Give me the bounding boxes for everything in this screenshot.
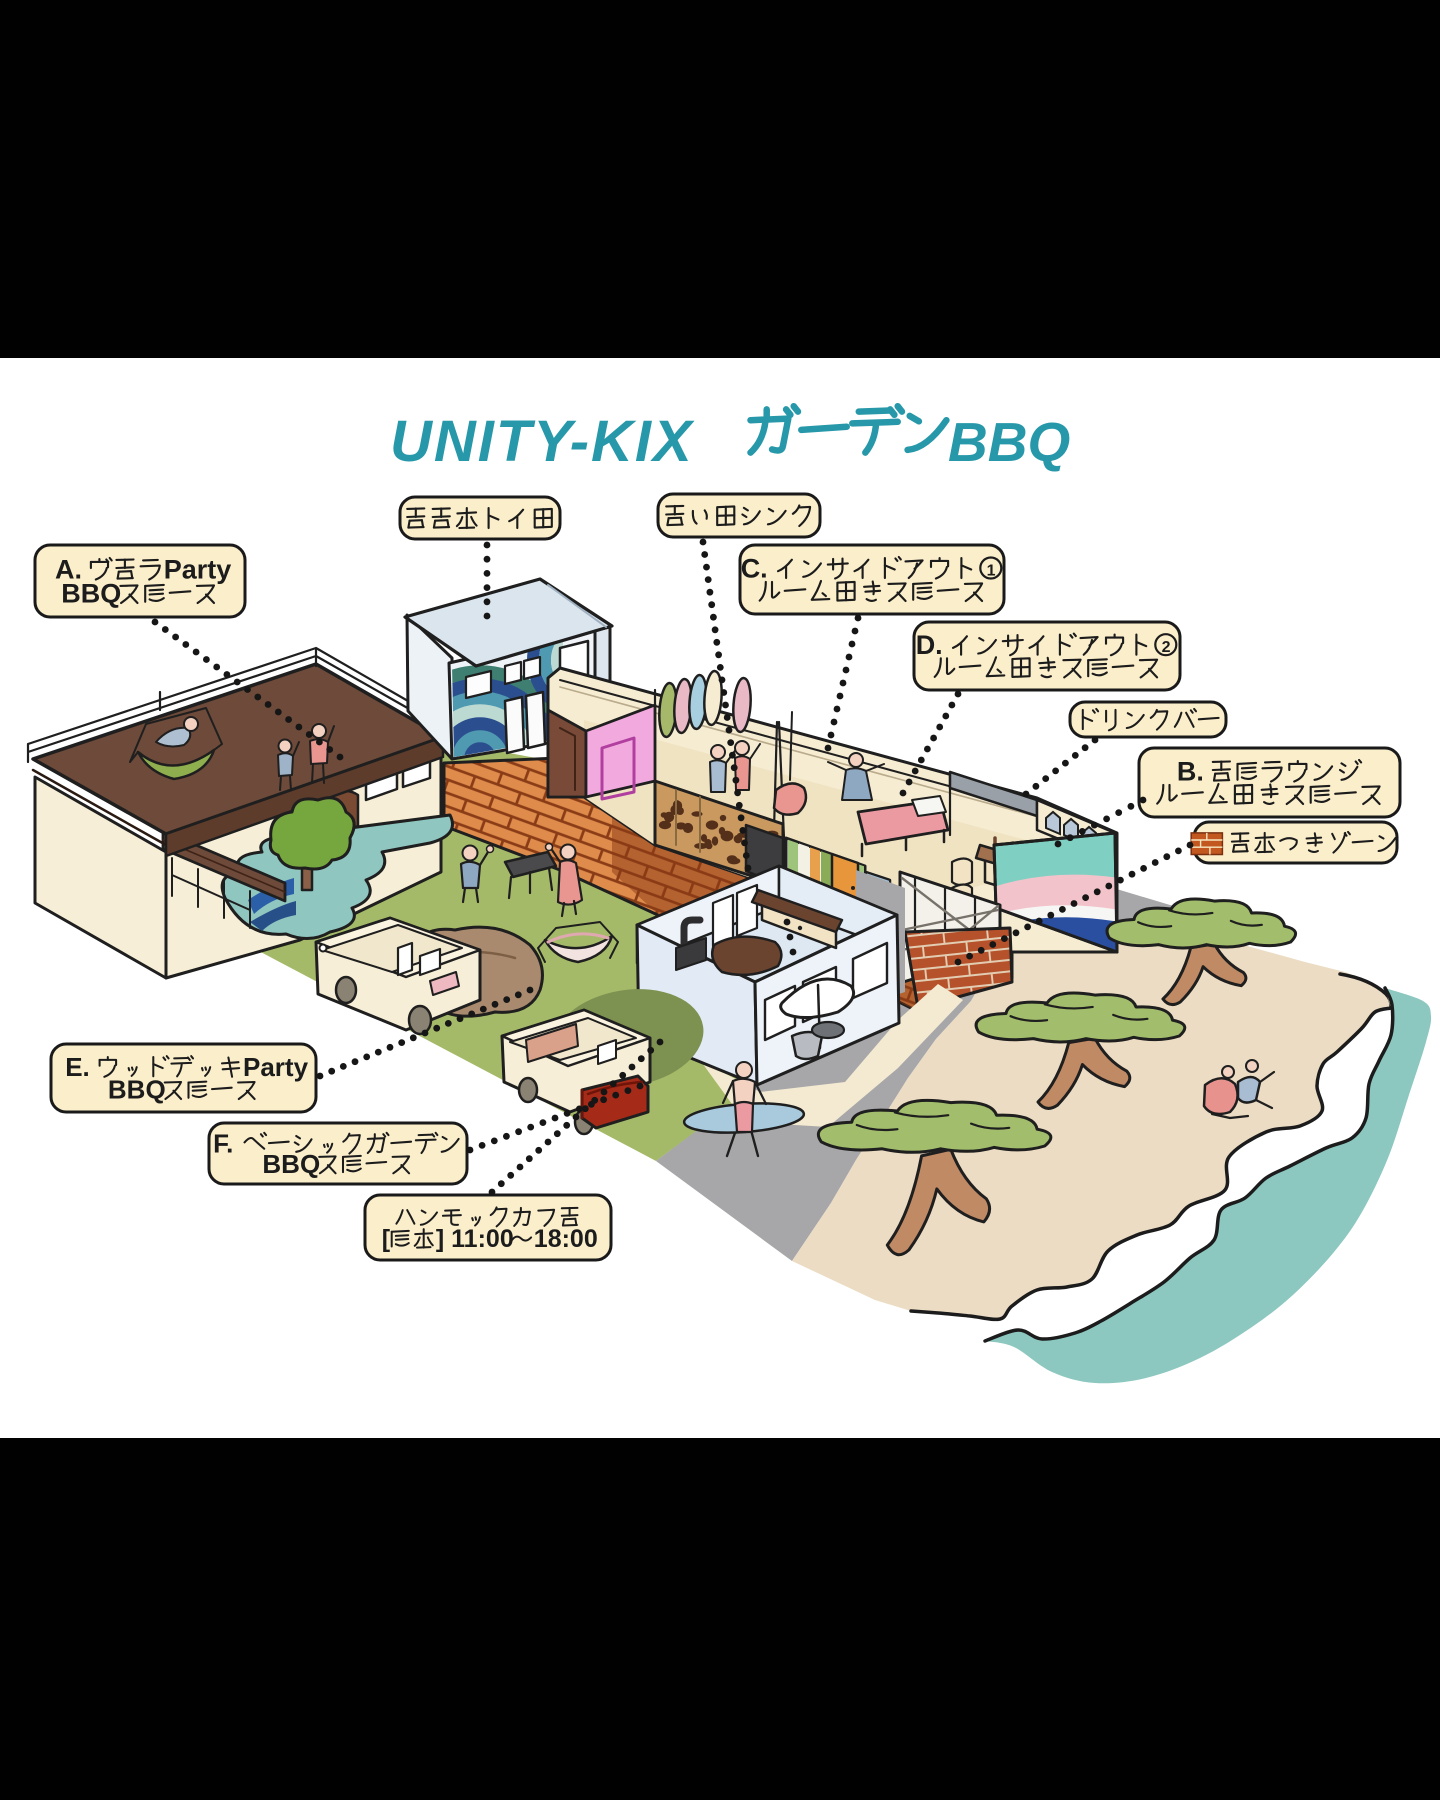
svg-text:] 11:00: ] 11:00 [436, 1225, 514, 1253]
svg-text:[: [ [382, 1225, 391, 1253]
svg-text:B.: B. [1177, 757, 1204, 787]
svg-text:E.: E. [65, 1052, 90, 1082]
svg-text:BBQ: BBQ [108, 1075, 166, 1105]
svg-text:C.: C. [741, 554, 768, 584]
svg-text:F.: F. [213, 1129, 233, 1159]
svg-text:1: 1 [987, 563, 996, 580]
svg-text:Party: Party [164, 555, 232, 585]
svg-text:BBQ: BBQ [948, 411, 1070, 473]
svg-text:Party: Party [243, 1052, 309, 1082]
svg-text:UNITY-KIX: UNITY-KIX [390, 409, 695, 474]
svg-text:BBQ: BBQ [262, 1149, 320, 1179]
svg-text:2: 2 [1162, 639, 1171, 656]
svg-text:BBQ: BBQ [61, 579, 121, 609]
svg-text:D.: D. [916, 630, 943, 660]
svg-text:18:00: 18:00 [534, 1225, 598, 1253]
